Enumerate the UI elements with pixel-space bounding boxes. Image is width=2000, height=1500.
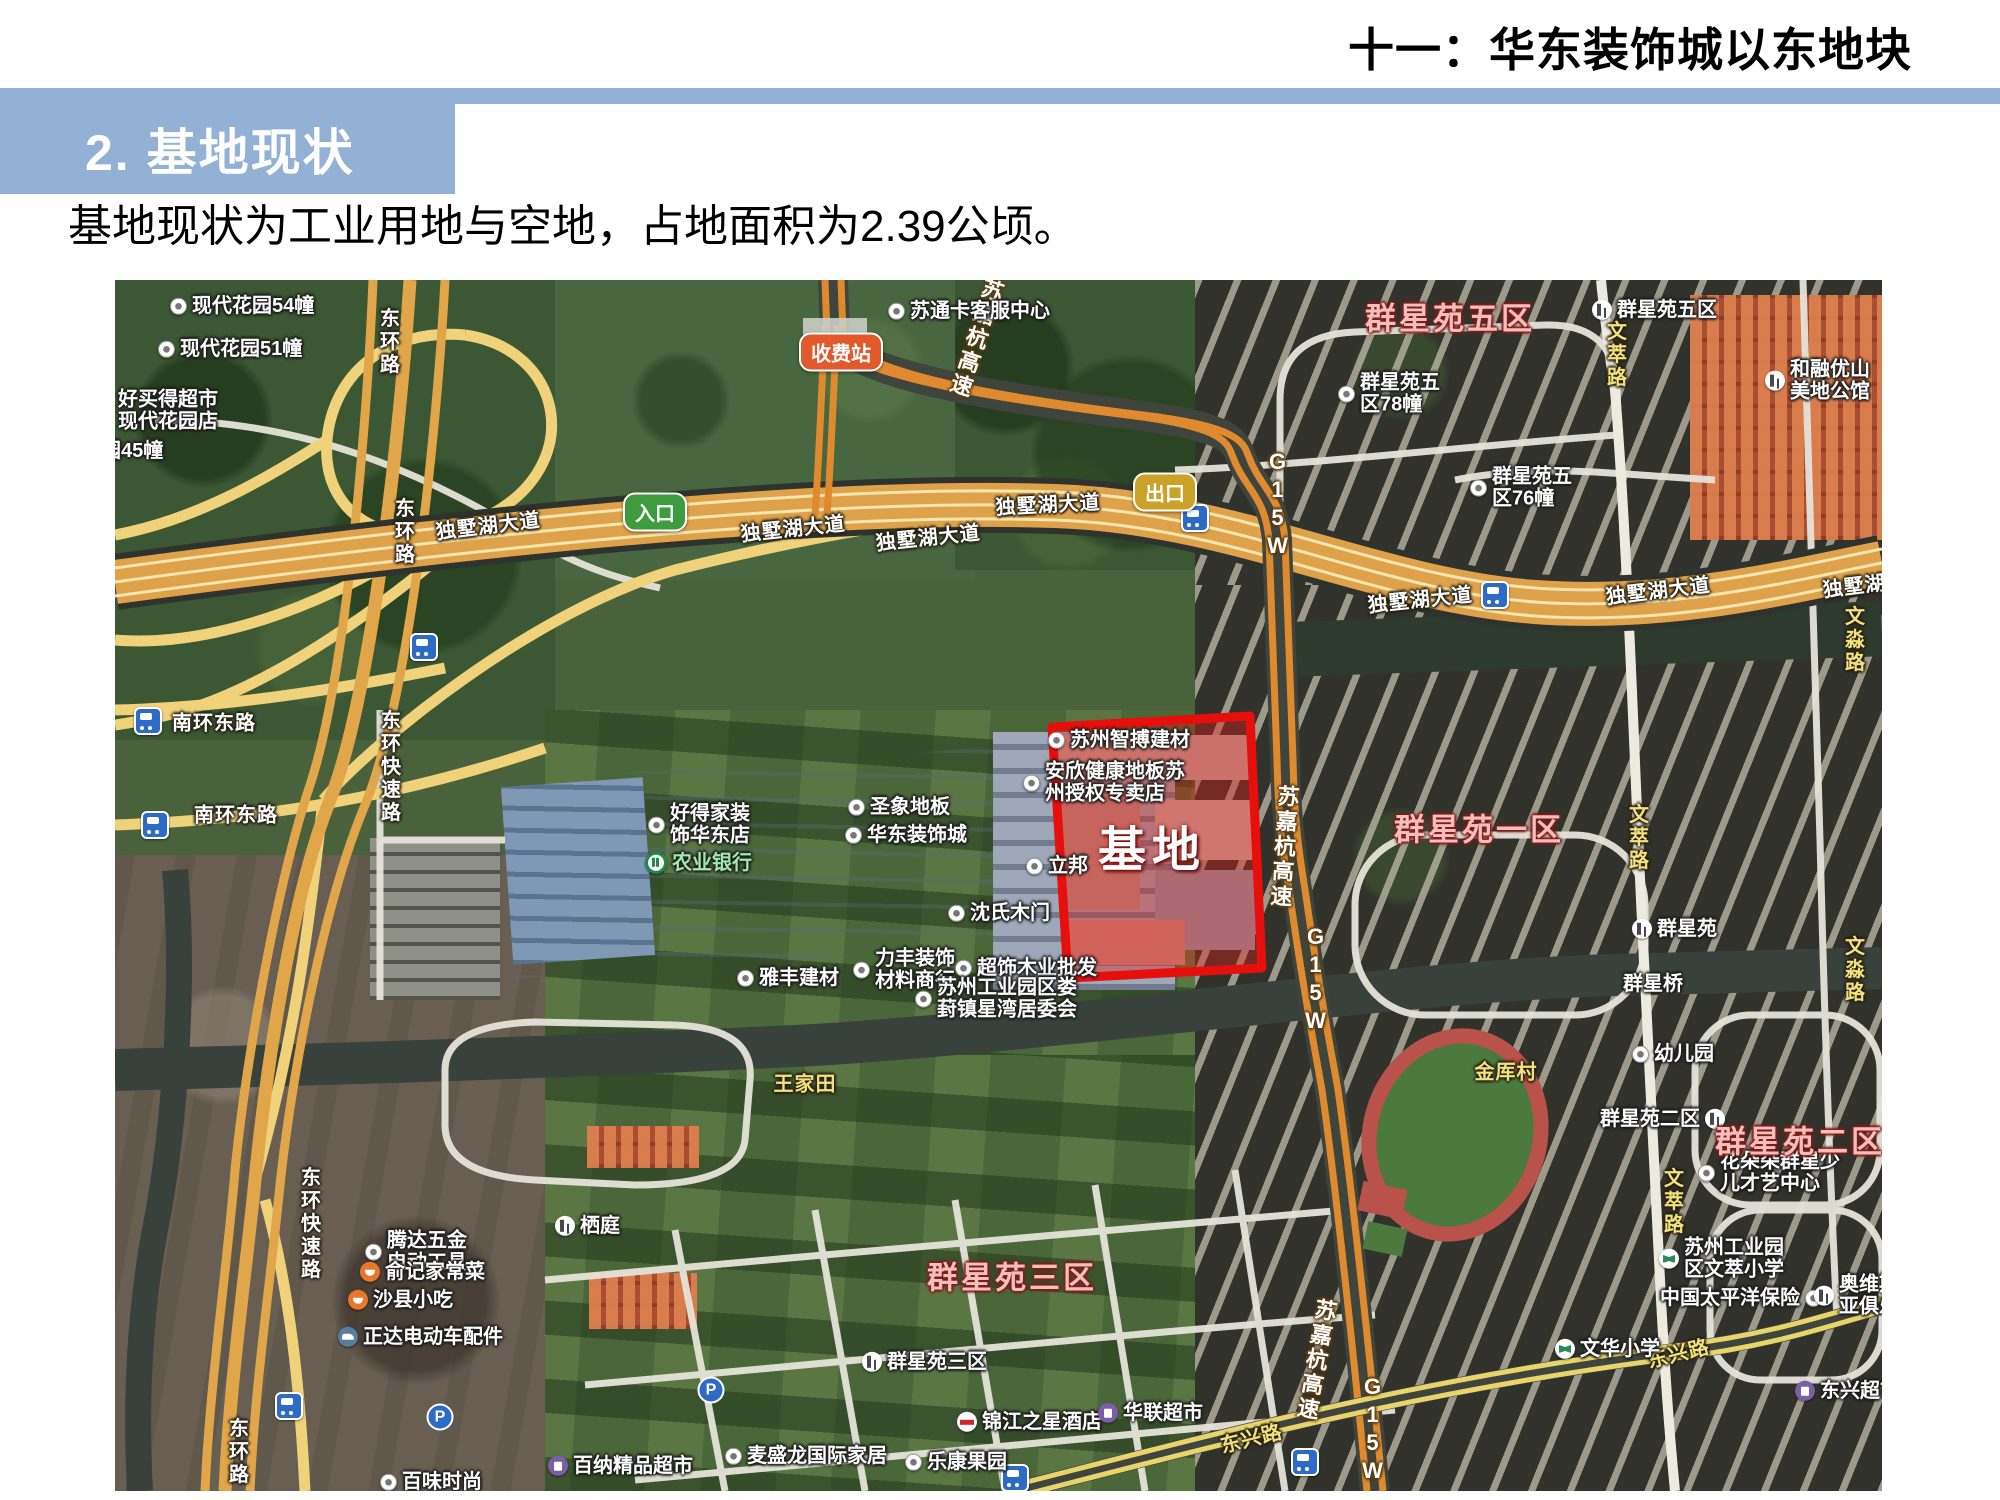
accent-strip [0, 88, 2000, 104]
bank-icon [645, 852, 667, 874]
district-label: 群星苑一区 [1394, 805, 1564, 850]
site-label: 基地 [1098, 810, 1206, 880]
stadium [1347, 1016, 1563, 1253]
map-poi-label: 奥维斯亚俱乐部 [1814, 1274, 1882, 1319]
section-header-text: 2. 基地现状 [85, 113, 355, 185]
dot-icon [1026, 857, 1043, 874]
map-poi-label: 华联超市 [1098, 1402, 1203, 1424]
map-poi-label: 俞记家常菜 [360, 1261, 485, 1283]
map-poi-label: 百味时尚 [380, 1471, 482, 1491]
body-text: 基地现状为工业用地与空地，占地面积为2.39公顷。 [68, 190, 1078, 254]
dot-icon [725, 1447, 742, 1464]
map-poi-label: 群星桥 [1623, 973, 1683, 995]
map-poi-label: 现代花园51幢 [158, 338, 302, 360]
road-name-label: 东环快速路 [375, 710, 404, 825]
map-poi-label: 群星苑五区78幢 [1338, 372, 1440, 417]
road-name-label: 金厍村 [1475, 1056, 1538, 1085]
dot-icon [848, 798, 865, 815]
road-name-label: 南环东路 [172, 707, 256, 736]
map-badge: 入口 [623, 493, 687, 532]
map-poi-label: 安欣健康地板苏州授权专卖店 [1023, 761, 1185, 806]
highway-name-label: G15W [1359, 1374, 1385, 1486]
district-label: 群星苑三区 [927, 1253, 1097, 1298]
road-name-label: 独墅湖大道 [995, 486, 1101, 520]
building-icon [1765, 371, 1785, 391]
map-poi-label: 正达电动车配件 [338, 1326, 503, 1348]
building-icon [1592, 300, 1612, 320]
road-name-label: 文淼路 [1839, 936, 1868, 1005]
dot-icon [1048, 731, 1065, 748]
district-label: 群星苑二区 [1715, 1117, 1882, 1162]
shop-icon [1098, 1403, 1118, 1423]
bus-stop-icon [134, 707, 162, 735]
dot-icon [915, 991, 932, 1008]
road-name-label: 文萃路 [1623, 804, 1652, 873]
map-poi-label: 和融优山美地公馆 [1765, 359, 1870, 404]
dot-icon [380, 1473, 397, 1490]
road-name-label: 王家田 [774, 1068, 837, 1097]
map-poi-label: 栖庭 [555, 1215, 620, 1237]
map-poi-label: 乐康果园 [905, 1451, 1007, 1473]
bus-stop-icon [1291, 1448, 1319, 1476]
school-icon [1659, 1249, 1679, 1269]
map-poi-label: 苏州工业园区娄葑镇星湾居委会 [915, 977, 1077, 1022]
dot-icon [365, 1244, 382, 1261]
map-poi-label: 群星苑二区 [1600, 1108, 1725, 1130]
map-poi-label: 现代花园54幢 [170, 295, 314, 317]
dot-icon [1698, 1165, 1715, 1182]
satellite-map: 现代花园54幢现代花园51幢好买得超市现代花园店园45幢苏通卡客服中心群星苑五区… [115, 280, 1882, 1491]
parking-icon: P [698, 1377, 725, 1404]
dot-icon [845, 826, 862, 843]
section-header-bar: 2. 基地现状 [0, 104, 455, 194]
dot-icon [905, 1453, 922, 1470]
bus-stop-icon [141, 811, 169, 839]
dot-icon [1470, 480, 1487, 497]
car-icon [338, 1327, 358, 1347]
map-poi-label: 沈氏木门 [948, 902, 1050, 924]
school-icon [1555, 1339, 1575, 1359]
map-badge: 收费站 [799, 333, 883, 372]
dot-icon [1023, 775, 1040, 792]
map-poi-label: 群星苑五区76幢 [1470, 466, 1572, 511]
bus-stop-icon [1481, 581, 1509, 609]
bus-stop-icon [275, 1392, 303, 1420]
map-poi-label: 好买得超市现代花园店 [118, 389, 218, 434]
map-poi-label: 百纳精品超市 [548, 1455, 693, 1477]
map-poi-label: 园45幢 [115, 440, 163, 462]
highway-name-label: G15W [1302, 924, 1328, 1036]
road-name-label: 东环路 [389, 498, 418, 567]
building-icon [555, 1216, 575, 1236]
shop-icon [548, 1456, 568, 1476]
dot-icon [1338, 386, 1355, 403]
map-poi-label: 东兴超市 [1795, 1380, 1882, 1402]
road-name-label: 文萃路 [1601, 321, 1630, 390]
building-icon [1814, 1286, 1834, 1306]
map-poi-label: 苏州工业园区文萃小学 [1659, 1237, 1784, 1282]
map-poi-label: 幼儿园 [1632, 1043, 1714, 1065]
dot-icon [1632, 1045, 1649, 1062]
building-icon [1632, 919, 1652, 939]
slide-title: 十一：华东装饰城以东地块 [1348, 14, 1912, 80]
parking-icon: P [427, 1404, 454, 1431]
road-name-label: 南环东路 [194, 799, 278, 828]
map-poi-label: 苏通卡客服中心 [888, 300, 1050, 322]
road-name-label: 东环路 [223, 1418, 252, 1487]
dot-icon [737, 969, 754, 986]
dot-icon [853, 962, 870, 979]
map-poi-label: 沙县小吃 [348, 1289, 453, 1311]
hotel-icon [957, 1412, 977, 1432]
map-poi-label: 麦盛龙国际家居 [725, 1445, 887, 1467]
map-poi-label: 华东装饰城 [845, 824, 967, 846]
map-badge: 出口 [1133, 473, 1197, 512]
rest-icon [348, 1290, 368, 1310]
bus-stop-icon [410, 633, 438, 661]
map-poi-label: 苏州智搏建材 [1048, 729, 1190, 751]
map-poi-label: 中国太平洋保险 [1660, 1287, 1822, 1309]
dot-icon [648, 817, 665, 834]
map-poi-label: 好得家装饰华东店 [648, 803, 750, 848]
map-poi-label: 群星苑三区 [862, 1351, 987, 1373]
map-poi-label: 文华小学 [1555, 1338, 1660, 1360]
dot-icon [888, 302, 905, 319]
map-poi-label: 雅丰建材 [737, 967, 839, 989]
map-poi-label: 锦江之星酒店 [957, 1411, 1102, 1433]
dot-icon [955, 959, 972, 976]
map-poi-label: 立邦 [1026, 855, 1088, 877]
dot-icon [170, 297, 187, 314]
dot-icon [948, 904, 965, 921]
road-name-label: 文萃路 [1658, 1168, 1687, 1237]
district-label: 群星苑五区 [1365, 294, 1535, 339]
road-name-label: 东环路 [374, 308, 403, 377]
map-poi-label: 圣象地板 [848, 796, 950, 818]
rest-icon [360, 1262, 380, 1282]
map-poi-label: 群星苑 [1632, 918, 1717, 940]
highway-name-label: G15W [1264, 449, 1290, 561]
map-poi-label: 群星苑五区 [1592, 299, 1717, 321]
road-name-label: 文淼路 [1839, 606, 1868, 675]
shop-icon [1795, 1381, 1815, 1401]
road-name-label: 东环快速路 [295, 1167, 324, 1282]
map-poi-label: 农业银行 [645, 852, 752, 874]
building-icon [862, 1352, 882, 1372]
dot-icon [158, 340, 175, 357]
